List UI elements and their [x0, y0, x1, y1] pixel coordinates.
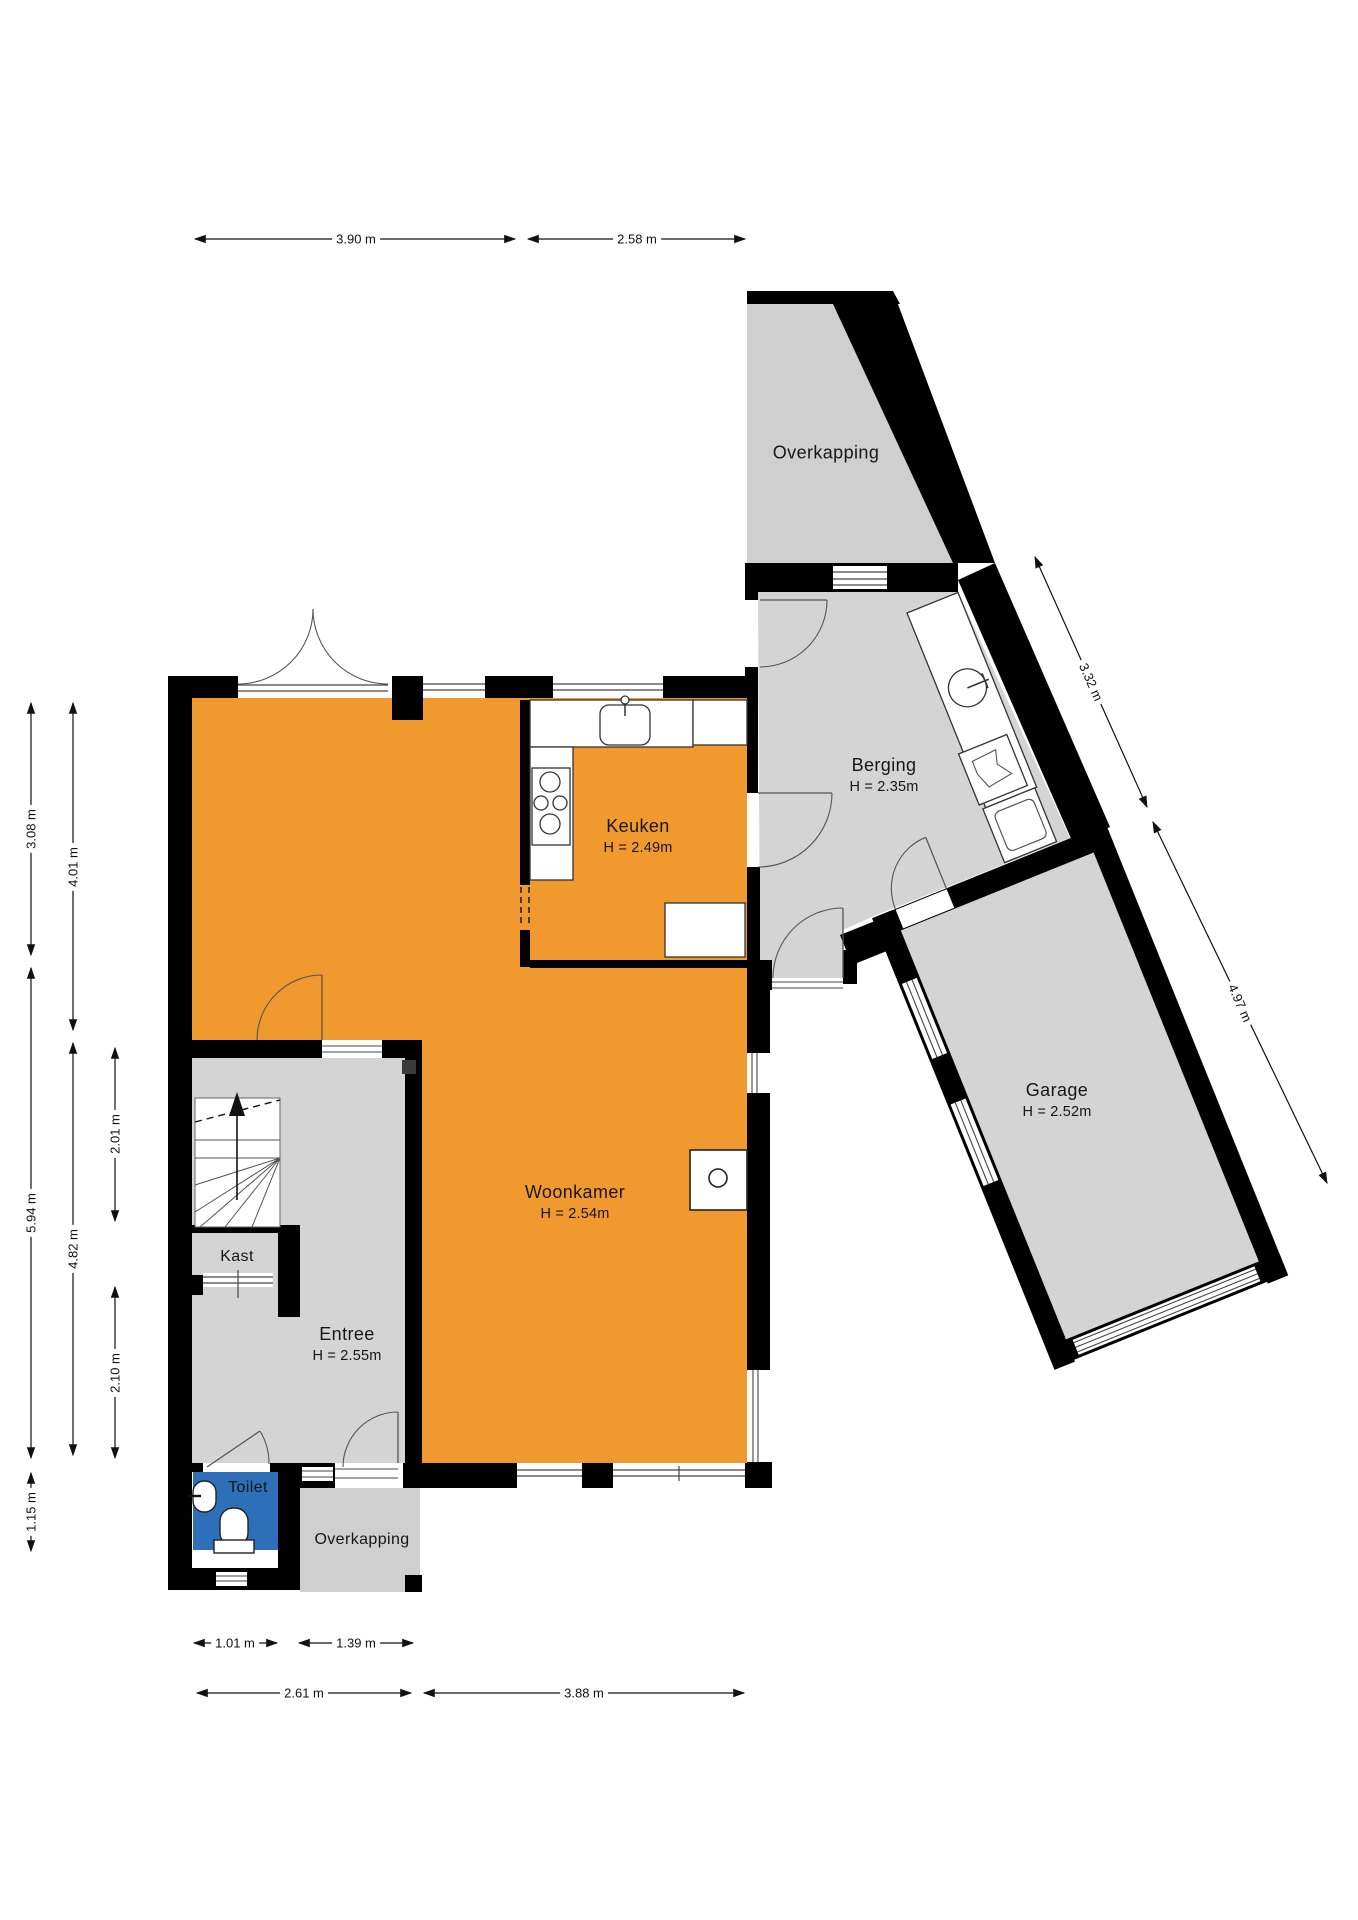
dim-left-2: 4.01 m: [66, 843, 81, 891]
floorplan: Overkapping Berging H = 2.35m Garage H =…: [0, 0, 1358, 1920]
woonkamer-fixtures: [690, 1150, 747, 1210]
room-label-entree: Entree H = 2.55m: [312, 1324, 381, 1364]
dim-left-4: 4.82 m: [66, 1225, 81, 1273]
room-label-toilet: Toilet: [228, 1479, 268, 1497]
room-label-berging: Berging H = 2.35m: [849, 755, 918, 795]
floorplan-drawing: [0, 0, 1358, 1920]
flue: [402, 1060, 416, 1074]
french-doors-arc: [238, 609, 388, 684]
dim-bottom-4: 3.88 m: [560, 1686, 608, 1701]
dim-left-7: 1.15 m: [24, 1488, 39, 1536]
room-overkapping-top: [747, 291, 995, 563]
dim-left-5: 2.01 m: [108, 1110, 123, 1158]
dim-bottom-2: 1.39 m: [332, 1636, 380, 1651]
stairs: [195, 1092, 280, 1227]
kitchen-appliance: [693, 700, 747, 745]
dim-left-3: 5.94 m: [24, 1189, 39, 1237]
dim-bottom-1: 1.01 m: [211, 1636, 259, 1651]
dim-left-6: 2.10 m: [108, 1349, 123, 1397]
dim-left-1: 3.08 m: [24, 805, 39, 853]
room-label-overkapping-bottom: Overkapping: [314, 1531, 409, 1549]
room-label-garage: Garage H = 2.52m: [1022, 1080, 1091, 1120]
room-label-kast: Kast: [220, 1248, 254, 1266]
room-label-woonkamer: Woonkamer H = 2.54m: [525, 1182, 625, 1222]
dim-top-1: 3.90 m: [332, 232, 380, 247]
kitchen-counter-south: [665, 903, 745, 957]
dim-bottom-3: 2.61 m: [280, 1686, 328, 1701]
room-label-keuken: Keuken H = 2.49m: [603, 816, 672, 856]
room-label-overkapping-top: Overkapping: [773, 443, 879, 464]
dim-top-2: 2.58 m: [613, 232, 661, 247]
